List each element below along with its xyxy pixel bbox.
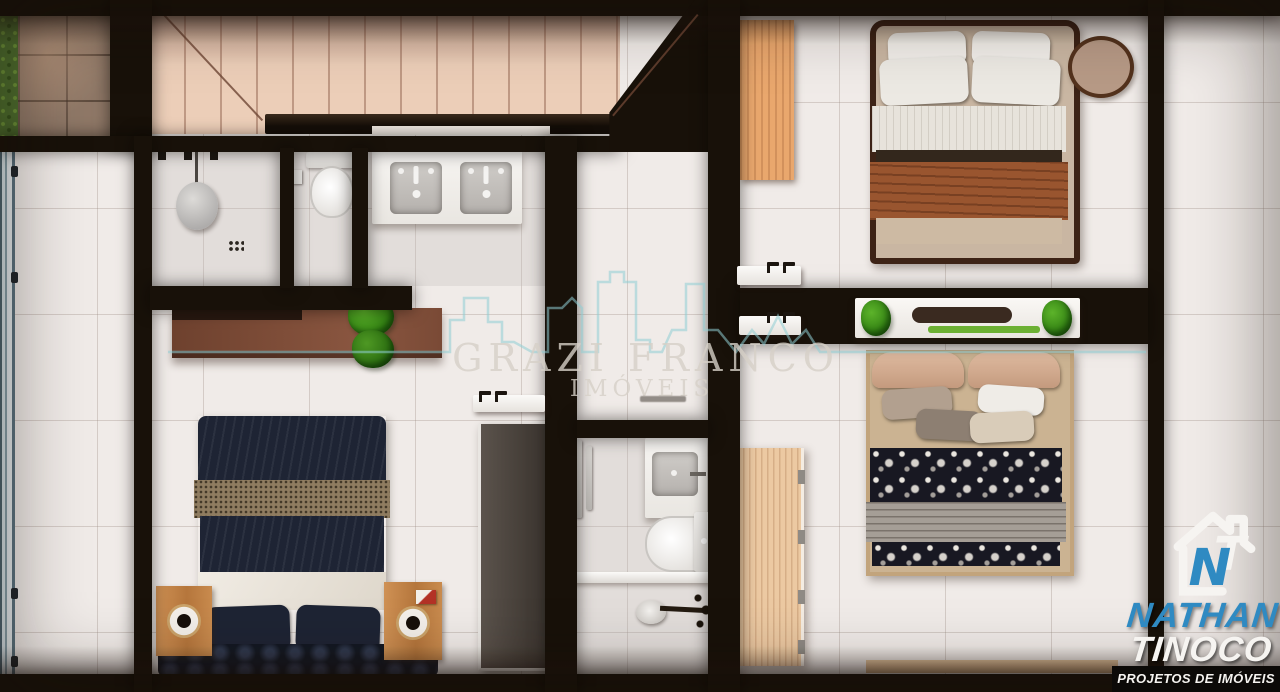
stone-path [18,8,112,138]
drawer-handle [798,470,805,484]
faucet-icon [414,166,419,184]
bed-1-duvet-fold [198,416,386,482]
grass-patch [0,16,18,138]
faucet-hook-icon [479,391,491,395]
wall-shelf [473,395,545,412]
watermark-brand: GRAZI FRANCO [452,336,840,380]
door-leaf [740,20,794,180]
drawer-handle [798,590,805,604]
drawer-handle [798,640,805,654]
sink-knob [468,168,474,174]
nightstand-right [384,582,442,660]
logo-monogram-n: N [1189,539,1232,598]
bed-3-pillow [969,410,1034,443]
flush-button [701,538,707,544]
sink-knob [398,168,404,174]
wall-stone-edge [110,0,152,148]
bed-2-brown-blanket [870,162,1068,220]
shower-head [176,182,218,230]
faucet-icon [690,472,706,476]
round-tray-icon [396,606,430,640]
plant-icon [352,330,394,368]
plant-icon [1042,300,1072,336]
faucet-hook-icon [767,312,779,316]
bed-2 [870,20,1080,264]
green-runner [928,326,1040,333]
vanity-sink-right [460,162,512,214]
floor-runner-strip [866,660,1118,673]
door-hinge [11,166,18,177]
faucet-icon [484,166,489,184]
toilet-1-bowl [310,166,354,218]
decor-tray [912,307,1012,323]
bed-3-headboard-cushion [872,352,964,388]
nightstand-left [156,586,212,656]
handheld-shower-wand [636,600,666,624]
bed-1-duvet [200,516,384,574]
wall-top [0,0,1280,16]
wall-bathroom-2-top [577,420,708,438]
wall-shelf [739,316,801,335]
bath-2-counter [645,438,707,518]
console-edge [172,351,442,358]
decor-box [416,590,436,604]
wall-toilet-stall [352,148,368,288]
faucet-hook-icon [495,391,507,395]
faucet-hook-icon [767,262,779,266]
logo-tagline: PROJETOS DE IMÓVEIS 3D [1112,666,1280,692]
bed-3-damask-blanket [870,448,1062,502]
wall-left-vertical [134,136,152,692]
bed-1-throw-blanket [194,480,390,518]
bed-3-ruched-runner [866,502,1066,542]
bed-2-pillow [879,56,969,107]
bed-2-foot-sheet [876,218,1062,244]
logo-house-icon: T N [1162,500,1266,602]
sink-knob [498,168,504,174]
sink-drain [671,470,677,476]
floorplan-rendering: GRAZI FRANCO IMÓVEIS T N NATHAN TINOCO P… [0,0,1280,692]
shower-partition [563,572,710,583]
wall-upper-horizontal [0,136,620,152]
sink-knob [428,168,434,174]
bed-1-sheet [198,572,386,610]
drawer-handle [798,530,805,544]
door-hinge [11,656,18,667]
bed-1 [198,416,386,654]
tall-wardrobe-panel [478,424,549,671]
wall-console-shelf [172,308,442,358]
bed-2-pillow [971,56,1061,107]
logo-name-last: TINOCO [1128,630,1274,670]
wall-bottom [0,674,1280,692]
watermark-small-line [640,396,686,402]
dresser-wood [737,448,804,666]
plant-icon [861,300,891,336]
stair-landing-strip [372,126,550,135]
round-rug [1068,36,1134,98]
bath-2-sink [652,452,698,496]
bed-3-headboard-cushion [968,352,1060,388]
door-hinge [11,272,18,283]
door-hinge [11,588,18,599]
console-sideboard [855,298,1080,338]
faucet-hook-icon [783,262,795,266]
floor-drain [228,240,244,252]
vanity-sink-left [390,162,442,214]
bed-3 [866,350,1074,576]
bed-3-damask-foot [872,542,1060,566]
vanity-counter [372,150,522,224]
wall-shelf [737,266,801,285]
towel-bar [586,446,592,510]
round-tray-icon [167,604,201,638]
wall-mid-left-vertical [545,136,577,692]
bed-2-quilt-white [872,106,1066,152]
faucet-hook-icon [783,312,795,316]
wall-bathroom-1-bottom [150,286,412,310]
wall-shower-stall [280,148,294,288]
